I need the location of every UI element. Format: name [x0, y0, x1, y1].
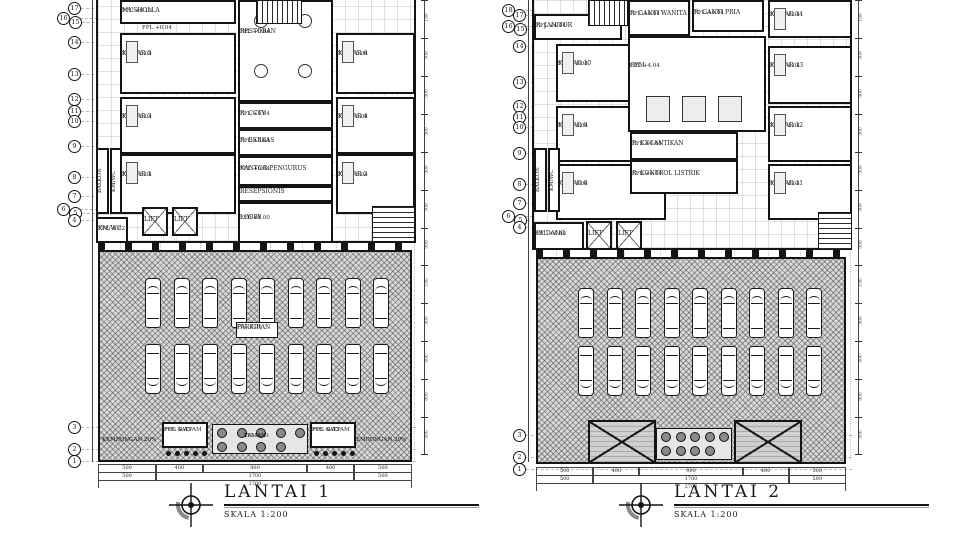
plan-scale-lantai-2: SKALA 1:200 — [674, 510, 929, 519]
room-ffl: FFL +4.04 — [630, 11, 660, 17]
dimension-tick — [855, 228, 862, 229]
car-windshield — [261, 286, 273, 294]
dimension-value: 800 — [425, 386, 430, 408]
dimension-segment: 400 — [593, 467, 639, 475]
car-icon — [316, 344, 332, 394]
bed-icon — [774, 54, 786, 76]
grid-axis-line — [528, 0, 529, 462]
room-ffl: FFL +0.04 — [240, 166, 270, 172]
car-rear-window — [808, 352, 820, 356]
room-r-kecantikan: R. KECANTIKANFFL +4.04 — [630, 132, 738, 160]
dimension-value: 300 — [425, 121, 430, 143]
bed-icon — [774, 114, 786, 136]
grid-bubble-7: 7 — [68, 190, 81, 203]
car-windshield — [751, 296, 763, 304]
dimension-segment: 500 — [354, 472, 412, 480]
dimension-value: 500 — [425, 234, 430, 256]
dimension-segment: 500 — [536, 475, 593, 483]
dimension-value: 300 — [859, 121, 864, 143]
car-rear-window — [723, 352, 735, 356]
car-icon — [721, 288, 737, 338]
bed-icon — [562, 52, 574, 74]
gym-equipment-icon — [682, 96, 706, 122]
bed-icon — [126, 162, 138, 184]
column-dot — [332, 451, 337, 456]
car-icon — [288, 278, 304, 328]
room-ffl: FFL +0.04 — [240, 138, 270, 144]
room-kamar-3: KAMAR 3FFL +0.04 — [120, 97, 236, 154]
dimension-segment: 400 — [743, 467, 789, 475]
car-windshield — [233, 378, 245, 386]
column-dot — [193, 451, 198, 456]
bed-icon — [342, 105, 354, 127]
car-windshield — [176, 378, 188, 386]
grid-bubble-9: 9 — [68, 140, 81, 153]
room-r-cctv: R. CCTVFFL +0.04 — [238, 102, 333, 129]
room-kamar-1: KAMAR 1FFL +0.04 — [120, 154, 236, 214]
car-icon — [607, 288, 623, 338]
car-windshield — [637, 380, 649, 388]
car-rear-window — [609, 328, 621, 332]
car-windshield — [780, 296, 792, 304]
room-kamar-2: KAMAR 2FFL +0.04 — [336, 154, 415, 214]
car-windshield — [580, 296, 592, 304]
car-rear-window — [204, 318, 216, 322]
car-icon — [145, 344, 161, 394]
column-dot — [350, 451, 355, 456]
titleblock-lantai-1: LANTAI 1 SKALA 1:200 — [168, 482, 479, 528]
dimension-value: 150 — [859, 7, 864, 29]
car-windshield — [290, 378, 302, 386]
dimension-value: 500 — [859, 348, 864, 370]
plant-icon — [217, 428, 227, 438]
grid-bubble-8: 8 — [513, 178, 526, 191]
car-rear-window — [580, 328, 592, 332]
room-name: LIFT — [144, 217, 159, 224]
dimension-value: 300 — [425, 45, 430, 67]
car-rear-window — [637, 352, 649, 356]
room-name: LIFT — [174, 217, 189, 224]
car-rear-window — [318, 350, 330, 354]
floor-plan-drawing: MUSHOLLAFFL +0.19KAMAR 5FFL +0.04KAMAR 3… — [0, 0, 960, 539]
gym-equipment-icon — [718, 96, 742, 122]
grid-bubble-1: 1 — [68, 455, 81, 468]
car-windshield — [808, 296, 820, 304]
dimension-tick — [421, 152, 428, 153]
room-kantor-pengurus: KANTOR PENGURUSFFL +0.04 — [238, 156, 333, 186]
dimension-segment: 900 — [639, 467, 742, 475]
room-ffl: FFL +4.04 — [632, 141, 662, 147]
dimension-value: 150 — [425, 272, 430, 294]
car-icon — [345, 278, 361, 328]
room-km-wc: KM/WCFFL -0.02 — [96, 217, 128, 243]
car-icon — [806, 288, 822, 338]
room-r-ganti-pria: R. GANTI PRIAFFL +4.04 — [692, 0, 764, 32]
dimension-value: 500 — [859, 234, 864, 256]
room-ffl: FFL +0.04 — [240, 29, 270, 35]
car-icon — [635, 288, 651, 338]
grid-bubble-13: 13 — [513, 76, 526, 89]
room-ffl: FFL +0.00 — [240, 215, 270, 221]
car-rear-window — [290, 318, 302, 322]
stairs-icon — [372, 206, 415, 242]
plant-icon — [690, 432, 700, 442]
car-windshield — [318, 286, 330, 294]
car-windshield — [347, 378, 359, 386]
dimension-segment: 500 — [354, 464, 412, 472]
car-windshield — [723, 380, 735, 388]
grid-bubble-13: 13 — [68, 68, 81, 81]
dimension-segment: 900 — [203, 464, 308, 472]
car-windshield — [204, 286, 216, 294]
car-icon — [174, 344, 190, 394]
dimension-tick — [421, 0, 428, 1]
bed-icon — [562, 114, 574, 136]
car-icon — [316, 278, 332, 328]
plan-title-lantai-1: LANTAI 1 — [224, 482, 479, 502]
car-windshield — [233, 286, 245, 294]
car-windshield — [694, 380, 706, 388]
dimension-tick — [855, 303, 862, 304]
car-rear-window — [580, 352, 592, 356]
car-rear-window — [780, 328, 792, 332]
car-windshield — [808, 380, 820, 388]
dimension-tick — [855, 341, 862, 342]
plant-icon — [276, 428, 286, 438]
car-rear-window — [347, 350, 359, 354]
plant-icon — [661, 446, 671, 456]
dimension-tick — [421, 114, 428, 115]
room-kamar-13: KAMAR 13FFL +4.04 — [768, 46, 852, 104]
car-rear-window — [290, 350, 302, 354]
guard-post-roof — [588, 420, 656, 464]
room-km-wc: KM/WC — [110, 148, 122, 214]
car-rear-window — [609, 352, 621, 356]
car-icon — [345, 344, 361, 394]
car-windshield — [666, 380, 678, 388]
dimension-value: 500 — [425, 83, 430, 105]
ffl-label: FFL +0.04 — [142, 25, 172, 31]
car-windshield — [694, 296, 706, 304]
dimension-tick — [855, 152, 862, 153]
room-ffl: FFL +4.04 — [694, 10, 724, 16]
dimension-tick — [855, 265, 862, 266]
room-kamar-14: KAMAR 14FFL +4.04 — [768, 0, 852, 38]
dimension-value: 500 — [859, 159, 864, 181]
car-icon — [373, 278, 389, 328]
car-icon — [259, 344, 275, 394]
room-lobby: LOBBYFFL +0.00 — [238, 202, 333, 243]
plant-icon — [295, 428, 305, 438]
parking-ffl: FFL -0.30 — [237, 324, 262, 330]
car-windshield — [204, 378, 216, 386]
plant-icon — [676, 446, 686, 456]
room-ffl: FFL +0.19 — [122, 8, 152, 14]
room-gudang: GUDANGFFL +4.00 — [534, 222, 584, 250]
dimension-tick — [421, 76, 428, 77]
dimension-value: 150 — [425, 7, 430, 29]
bed-icon — [126, 41, 138, 63]
car-rear-window — [666, 328, 678, 332]
plant-icon — [217, 442, 227, 452]
grid-bubble-4: 4 — [68, 214, 81, 227]
north-crosshair-icon — [618, 482, 664, 528]
car-windshield — [609, 380, 621, 388]
dimension-tick — [855, 114, 862, 115]
car-windshield — [666, 296, 678, 304]
dimension-segment: 500 — [98, 472, 156, 480]
car-icon — [692, 346, 708, 396]
room-r-ganti-wanita: R. GANTI WANITAFFL +4.04 — [628, 0, 690, 36]
dimension-tick — [855, 417, 862, 418]
car-windshield — [723, 296, 735, 304]
north-crosshair-icon — [168, 482, 214, 528]
dining-table-icon — [298, 64, 312, 78]
car-icon — [778, 288, 794, 338]
stairs-icon — [588, 0, 628, 26]
car-rear-window — [375, 318, 387, 322]
dimension-segment: 400 — [156, 464, 203, 472]
grid-bubble-14: 14 — [68, 36, 81, 49]
column-row — [98, 243, 412, 250]
grid-bubble-4: 4 — [513, 221, 526, 234]
plan-scale-lantai-1: SKALA 1:200 — [224, 510, 479, 519]
dimension-tick — [421, 454, 428, 455]
dimension-value: 300 — [425, 197, 430, 219]
dimension-tick — [421, 265, 428, 266]
bed-icon — [562, 172, 574, 194]
car-rear-window — [780, 352, 792, 356]
column-row — [536, 250, 846, 257]
car-icon — [749, 346, 765, 396]
stairs-icon — [818, 212, 852, 250]
plant-icon — [237, 442, 247, 452]
room-name: LIFT — [618, 231, 633, 238]
car-icon — [202, 344, 218, 394]
car-icon — [664, 346, 680, 396]
room-r-berkas: R. BERKASFFL +0.04 — [238, 129, 333, 156]
dimension-value: 500 — [425, 159, 430, 181]
dimension-tick — [855, 379, 862, 380]
room-ffl: FFL +4.04 — [536, 23, 566, 29]
dimension-segment: 500 — [536, 467, 593, 475]
grid-bubble-8: 8 — [68, 171, 81, 184]
car-rear-window — [176, 318, 188, 322]
dimension-tick — [421, 228, 428, 229]
title-rule — [674, 504, 929, 506]
grid-bubble-17: 17 — [68, 2, 81, 15]
guard-post-ffl: FFL -0.43 — [164, 427, 191, 434]
car-rear-window — [751, 328, 763, 332]
car-windshield — [290, 286, 302, 294]
car-windshield — [375, 378, 387, 386]
car-icon — [749, 288, 765, 338]
grid-bubble-3: 3 — [68, 421, 81, 434]
bed-icon — [126, 105, 138, 127]
column-dot — [202, 451, 207, 456]
dimension-tick — [855, 38, 862, 39]
car-icon — [607, 346, 623, 396]
garden-ffl: FFL -0.43 — [244, 433, 269, 439]
car-rear-window — [176, 350, 188, 354]
car-icon — [578, 288, 594, 338]
car-rear-window — [375, 350, 387, 354]
dimension-value: 500 — [425, 348, 430, 370]
plan-title-lantai-2: LANTAI 2 — [674, 482, 929, 502]
car-rear-window — [147, 318, 159, 322]
car-rear-window — [723, 328, 735, 332]
car-windshield — [261, 378, 273, 386]
car-icon — [635, 346, 651, 396]
titleblock-lantai-2: LANTAI 2 SKALA 1:200 — [618, 482, 929, 528]
bed-icon — [342, 162, 354, 184]
room-kamar-4: KAMAR 4FFL +0.04 — [336, 97, 415, 154]
room-musholla: MUSHOLLAFFL +0.19 — [120, 0, 236, 24]
car-windshield — [751, 380, 763, 388]
dining-table-icon — [254, 64, 268, 78]
column-dot — [175, 451, 180, 456]
dimension-value: 500 — [425, 310, 430, 332]
dimension-tick — [855, 0, 862, 1]
car-icon — [806, 346, 822, 396]
car-rear-window — [694, 328, 706, 332]
room-name: RESEPSIONIS — [240, 189, 285, 196]
title-rule — [224, 504, 479, 506]
column-dot — [166, 451, 171, 456]
dimension-value: 150 — [859, 272, 864, 294]
room-ffl: FFL +4.04 — [630, 63, 660, 69]
car-windshield — [147, 378, 159, 386]
dimension-value: 500 — [425, 424, 430, 446]
room-ffl: FFL +4.04 — [632, 171, 662, 177]
car-icon — [288, 344, 304, 394]
dimension-tick — [855, 454, 862, 455]
room-kamar-6: KAMAR 6FFL +0.04 — [336, 33, 415, 94]
car-windshield — [609, 296, 621, 304]
dimension-tick — [421, 417, 428, 418]
guard-post: POS SATPAMFFL -0.43 — [310, 422, 356, 448]
column-dot — [341, 451, 346, 456]
dimension-value: 300 — [859, 45, 864, 67]
dimension-value: 800 — [859, 386, 864, 408]
room-ffl: FFL -0.02 — [98, 226, 125, 232]
dimension-tick — [421, 303, 428, 304]
car-rear-window — [637, 328, 649, 332]
car-windshield — [147, 286, 159, 294]
car-rear-window — [666, 352, 678, 356]
room-ffl: FFL +4.00 — [536, 231, 566, 237]
room-lift: LIFT — [172, 207, 198, 236]
car-windshield — [780, 380, 792, 388]
dimension-tick — [855, 76, 862, 77]
car-rear-window — [694, 352, 706, 356]
dimension-tick — [421, 379, 428, 380]
dimension-tick — [421, 190, 428, 191]
grid-axis-line — [92, 0, 93, 462]
room-balkon: BALKON — [96, 148, 109, 214]
car-windshield — [318, 378, 330, 386]
room-ffl: FFL +0.04 — [240, 111, 270, 117]
car-windshield — [176, 286, 188, 294]
column-dot — [184, 451, 189, 456]
car-rear-window — [204, 350, 216, 354]
grid-bubble-14: 14 — [513, 40, 526, 53]
car-icon — [664, 288, 680, 338]
parking-label: PARKIRANFFL -0.30 — [236, 322, 278, 338]
car-rear-window — [318, 318, 330, 322]
dimension-tick — [421, 38, 428, 39]
bed-icon — [774, 172, 786, 194]
grid-bubble-10: 10 — [68, 115, 81, 128]
dimension-value: 500 — [859, 83, 864, 105]
room-gym: GYMFFL +4.04 — [628, 36, 766, 132]
car-icon — [778, 346, 794, 396]
car-icon — [202, 278, 218, 328]
car-rear-window — [233, 350, 245, 354]
plant-icon — [661, 432, 671, 442]
plant-icon — [705, 446, 715, 456]
car-rear-window — [751, 352, 763, 356]
guard-post: POS SATPAMFFL -0.43 — [162, 422, 208, 448]
column-dot — [314, 451, 319, 456]
dimension-segment: 1700 — [156, 472, 354, 480]
car-icon — [231, 344, 247, 394]
dimension-tick — [421, 341, 428, 342]
grid-bubble-15: 15 — [69, 16, 82, 29]
car-rear-window — [347, 318, 359, 322]
car-icon — [578, 346, 594, 396]
grid-bubble-16: 16 — [502, 20, 515, 33]
car-icon — [174, 278, 190, 328]
stairs-icon — [256, 0, 302, 24]
car-windshield — [580, 380, 592, 388]
room-lift: LIFT — [586, 221, 612, 250]
room-lift: LIFT — [142, 207, 168, 236]
title-rule-light — [224, 507, 479, 508]
car-windshield — [637, 296, 649, 304]
car-rear-window — [147, 350, 159, 354]
title-rule-light — [674, 507, 929, 508]
room-lift: LIFT — [616, 221, 642, 250]
car-rear-window — [261, 350, 273, 354]
car-icon — [721, 346, 737, 396]
car-icon — [373, 344, 389, 394]
dimension-value: 300 — [859, 197, 864, 219]
plant-icon — [705, 432, 715, 442]
slope-label: KEMIRINGAN 20% — [102, 437, 156, 443]
gym-equipment-icon — [646, 96, 670, 122]
car-windshield — [347, 286, 359, 294]
dimension-value: 500 — [859, 310, 864, 332]
dimension-segment: 500 — [789, 467, 846, 475]
car-icon — [259, 278, 275, 328]
dimension-segment: 400 — [307, 464, 354, 472]
plant-icon — [676, 432, 686, 442]
room-kamar-12: KAMAR 12FFL +4.04 — [768, 106, 852, 162]
car-icon — [692, 288, 708, 338]
guard-post-ffl: FFL -0.43 — [312, 427, 339, 434]
plant-icon — [719, 432, 729, 442]
bed-icon — [342, 41, 354, 63]
room-km-wc: KM/WC — [548, 148, 560, 212]
room-resepsionis: RESEPSIONIS — [238, 186, 333, 202]
grid-bubble-17: 17 — [513, 9, 526, 22]
dimension-value: 500 — [859, 424, 864, 446]
plant-icon — [256, 442, 266, 452]
guard-post-roof — [734, 420, 802, 464]
car-icon — [145, 278, 161, 328]
grid-bubble-1: 1 — [513, 463, 526, 476]
